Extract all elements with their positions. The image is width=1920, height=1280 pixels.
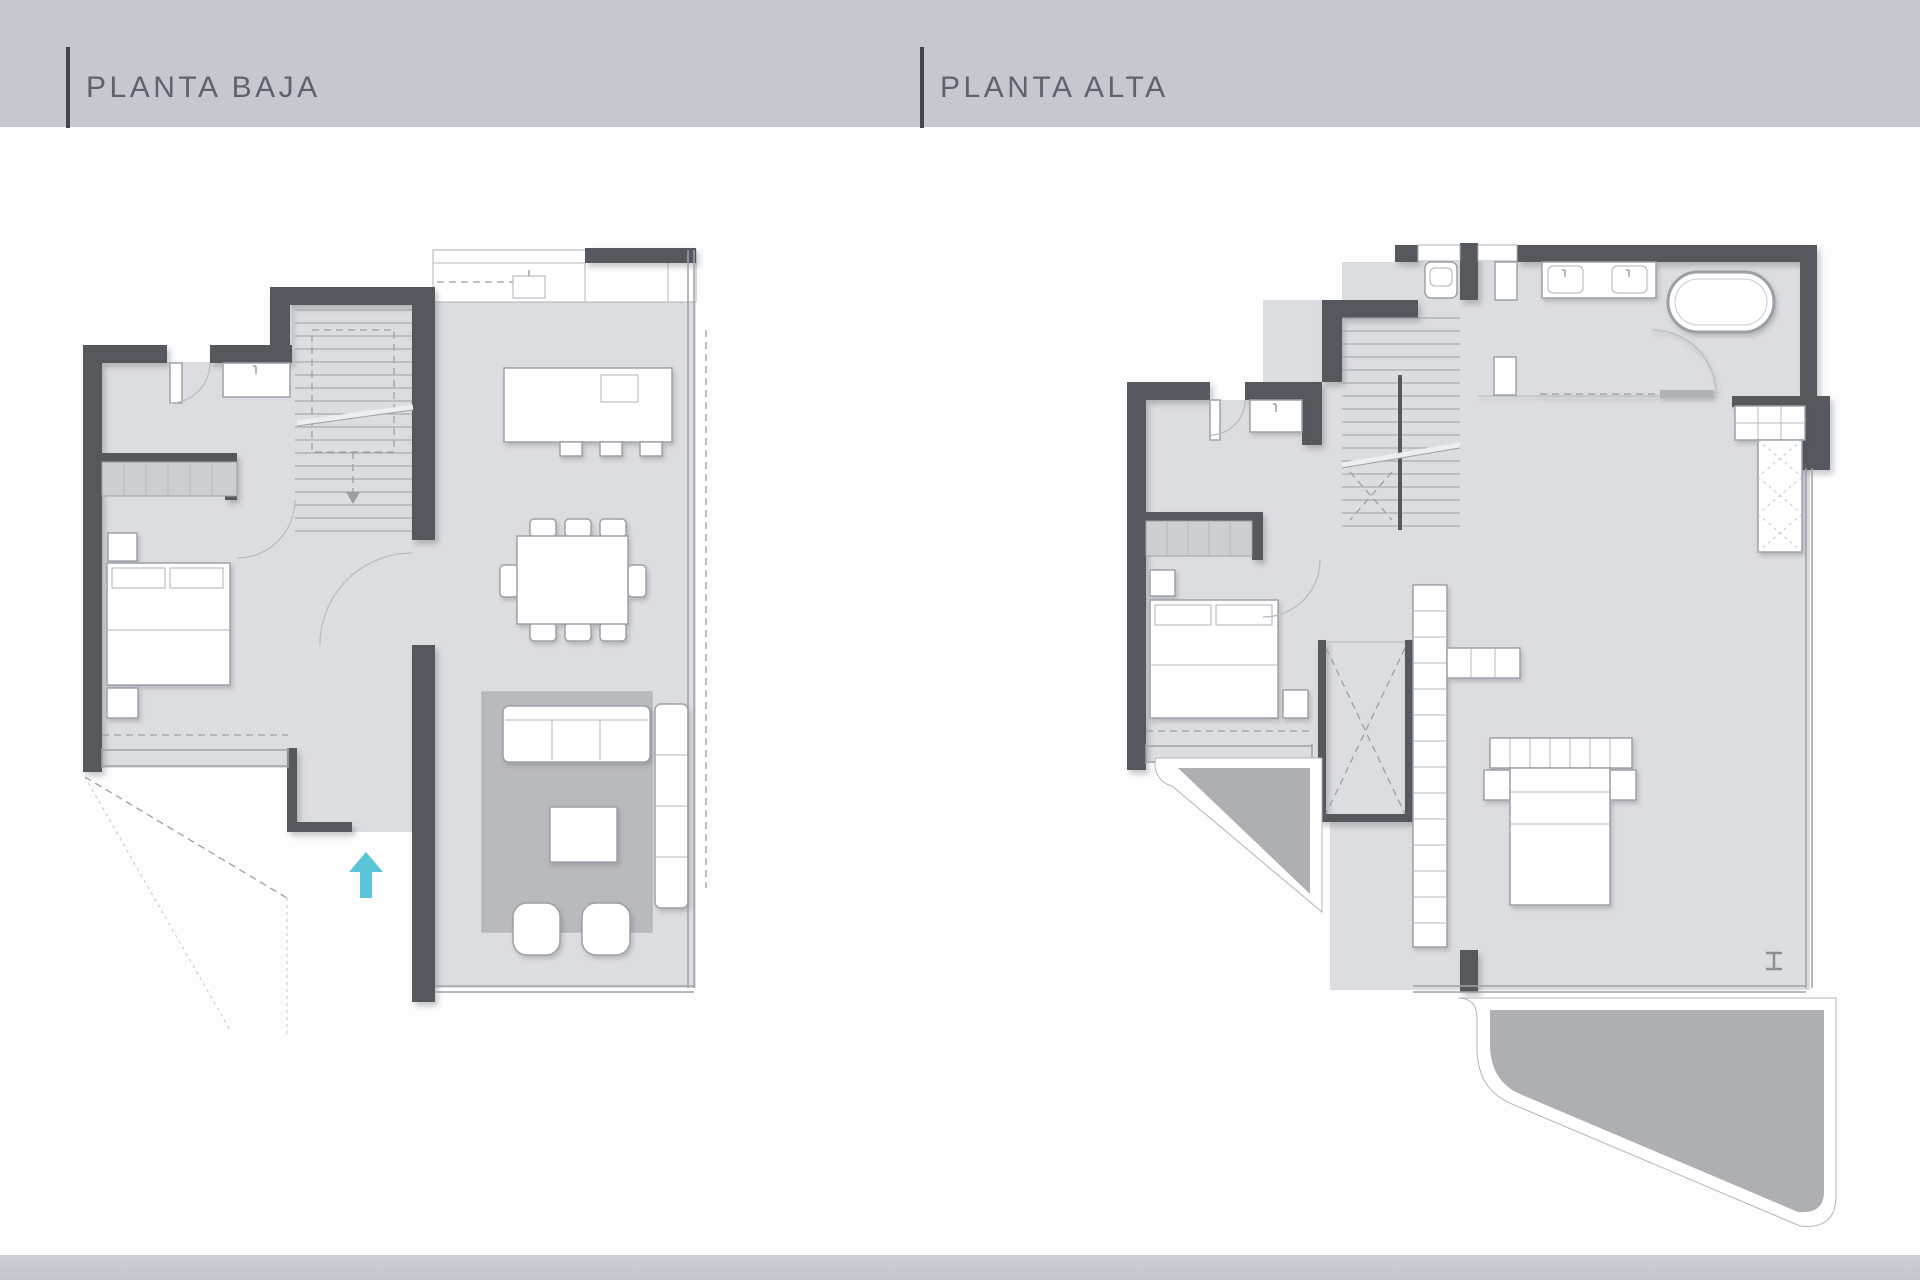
door-leaf: [170, 363, 182, 403]
coffee-table: [550, 807, 617, 862]
floorplans-drawing: [0, 0, 1920, 1280]
entry-arrow-icon: [349, 852, 383, 898]
bedroom-closet: [102, 462, 237, 496]
pillow: [1216, 605, 1272, 625]
sink: [601, 375, 638, 402]
shelf: [1494, 357, 1516, 395]
pillow: [1155, 605, 1211, 625]
planta-alta-floorplan: [1127, 243, 1836, 1226]
stool: [560, 442, 582, 456]
vestibule: [223, 363, 290, 397]
nightstand: [107, 688, 138, 718]
door-gap: [1478, 245, 1517, 261]
wardrobe: [1413, 585, 1447, 947]
planta-baja-floorplan: [83, 248, 706, 1035]
pillow: [170, 568, 223, 588]
nightstand: [1150, 570, 1175, 596]
terrace-large: [1458, 998, 1836, 1226]
chair: [530, 519, 556, 537]
sliding-door: [1660, 390, 1714, 398]
sofa: [503, 706, 650, 762]
shelf: [1495, 262, 1517, 300]
bedroom2-closet: [1146, 521, 1252, 556]
pouf: [582, 903, 630, 955]
pouf: [513, 903, 560, 955]
window: [1418, 245, 1460, 261]
chair: [565, 519, 591, 537]
stool: [640, 442, 662, 456]
terrace-small: [1155, 758, 1322, 912]
dining-table: [517, 536, 628, 624]
nightstand: [1484, 770, 1510, 800]
nightstand: [108, 533, 137, 561]
chair: [500, 565, 518, 597]
shelf: [1447, 648, 1520, 678]
chair: [628, 565, 646, 597]
chair: [565, 623, 591, 641]
dining-set: [500, 519, 646, 641]
bed: [1510, 768, 1610, 905]
nightstand: [1283, 690, 1308, 718]
nightstand: [1610, 770, 1636, 800]
stool: [600, 442, 622, 456]
headboard: [1490, 738, 1632, 768]
bathtub: [1668, 272, 1774, 332]
floorplan-sheet: PLANTA BAJA PLANTA ALTA: [0, 0, 1920, 1280]
pillow: [112, 568, 165, 588]
chair: [530, 623, 556, 641]
chair: [600, 519, 626, 537]
chair: [600, 623, 626, 641]
